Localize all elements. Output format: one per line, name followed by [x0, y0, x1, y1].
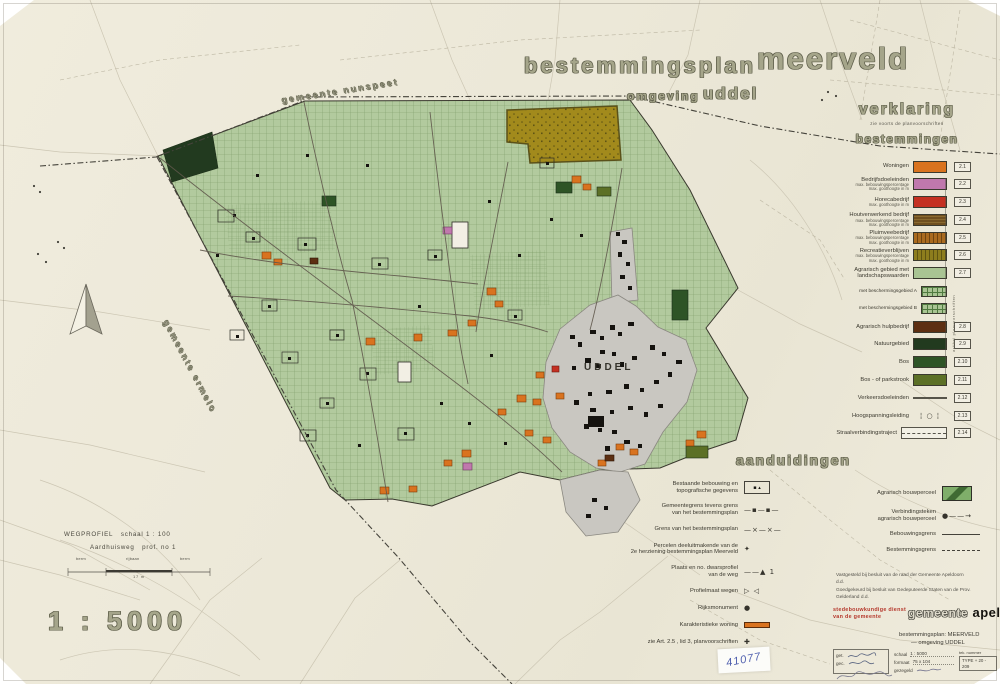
segment-label: berm	[76, 556, 86, 561]
archive-sticker: 41077	[717, 647, 770, 674]
department-line1: stedebouwkundige dienst	[833, 607, 906, 613]
aanduiding-item-label: Verbindingstekenagrarisch bouwperceel	[806, 509, 936, 522]
aanduiding-symbol-cell	[942, 530, 992, 538]
aanduiding-symbol-cell: ✦	[744, 545, 790, 553]
logo-word-gemeente: gemeente	[908, 606, 968, 620]
legend-item-code: 2.3	[954, 197, 971, 207]
legend-swatch-gridgreen	[921, 303, 947, 314]
aanduidingen-right-column: Agrarisch bouwperceelVerbindingstekenagr…	[806, 486, 992, 562]
characteristic-dwelling-symbol	[744, 622, 770, 628]
plan-subtitle-place: uddel	[703, 84, 758, 104]
road-profile-segment-labels: berm rijbaan berm	[64, 556, 224, 562]
approval-note-council: Vastgesteld bij besluit van de raad der …	[836, 572, 994, 586]
aanduiding-item-label: Bebouwingsgrens	[806, 531, 936, 538]
revision-parcel-symbol: ✦	[744, 545, 751, 553]
building-limit-line	[942, 534, 980, 535]
form-get-label: get.	[836, 653, 844, 658]
archive-number-handwritten: 41077	[725, 651, 762, 670]
approval-date-label: d.d.	[861, 594, 869, 601]
village-label: UDDEL	[584, 362, 633, 373]
aanduiding-item-label: Karakteristieke woning	[614, 622, 738, 629]
form-drawing-number-label: tek. nummer	[959, 650, 997, 655]
road-profile-measure-symbol: ▷ ◁	[744, 587, 760, 595]
legend-item: Horecabedrijfmax. goothoogte in m2.3	[843, 195, 971, 210]
titleblock-plan-name: bestemmingsplan: MEERVELD — omgeving UDD…	[899, 631, 979, 647]
legend-item: Pluimveebedrijfmax. bebouwingspercentage…	[843, 230, 971, 245]
legend-swatch-olivehatch	[913, 249, 947, 261]
legend-item-label: Natuurgebied	[843, 341, 913, 347]
legend-item-label: Bedrijfsdoeleindenmax. bebouwingspercent…	[843, 177, 913, 192]
segment-label: rijbaan	[126, 556, 139, 561]
aanduiding-item: Verbindingstekenagrarisch bouwperceel●——…	[806, 509, 992, 522]
aanduiding-item: Agrarisch bouwperceel	[806, 486, 992, 501]
agrarian-building-plot-swatch	[942, 486, 972, 501]
legend-swatch-brownhatch	[913, 214, 947, 226]
form-format-value: 75 x 104	[913, 659, 954, 665]
aanduiding-item-label: Bestaande bebouwing entopografische gege…	[614, 481, 738, 494]
aanduiding-item-label: Agrarisch bouwperceel	[806, 490, 936, 497]
aanduiding-symbol-cell	[942, 486, 992, 501]
legend-swatch-line	[913, 397, 947, 399]
legend-item-code: 2.14	[954, 428, 971, 438]
legend-item-label: Straalverbindingstraject	[836, 430, 901, 436]
legend-item-label: Hoogspanningsleiding	[843, 413, 913, 419]
legend-item-label: met beschermingsgebied B	[843, 306, 921, 311]
legend-item-label: Pluimveebedrijfmax. bebouwingspercentage…	[843, 230, 913, 245]
form-scale-label: schaal	[894, 652, 907, 657]
legend-swatch-corridor	[901, 427, 947, 439]
legend-item: Bos - of parkstrook2.11	[843, 373, 971, 388]
aanduiding-symbol-cell: ▷ ◁	[744, 587, 790, 595]
legend-subheading: zie voorts de planvoorschriften	[843, 121, 971, 126]
aanduiding-item: Grens van het bestemmingsplan—×—×—	[614, 526, 790, 534]
legend-swatch-hv: ¦ ○ ¦	[913, 410, 947, 422]
signature-scribble	[848, 660, 878, 667]
aanduiding-item-label: Gemeentegrens tevens grensvan het bestem…	[614, 503, 738, 516]
legend-item-code: 2.11	[954, 375, 971, 385]
department-line2: van de gemeente	[833, 614, 881, 620]
form-scale-value: 1 : 5000	[910, 651, 954, 657]
legend-heading: verklaring	[843, 101, 971, 119]
aanduiding-symbol-cell: —▪—▪—	[744, 506, 790, 514]
legend-swatch-rusthatch	[913, 232, 947, 244]
legend-item-code: 2.2	[954, 179, 971, 189]
approval-note-province: Goedgekeurd bij besluit van Gedeputeerde…	[836, 587, 994, 601]
municipality-logo: gemeente apeldoorn	[908, 604, 1000, 622]
legend-item-label: met beschermingsgebied A	[843, 289, 921, 294]
plan-name-line2: — omgeving UDDEL	[911, 639, 979, 647]
national-monument-symbol: ●	[744, 604, 751, 612]
legend-item-label: Horecabedrijfmax. goothoogte in m	[843, 197, 913, 207]
legend-item-code: 2.8	[954, 322, 971, 332]
legend-swatch-orange	[913, 161, 947, 173]
aanduiding-symbol-cell	[744, 621, 790, 629]
existing-buildings-symbol: ▪ ▴	[744, 481, 770, 494]
logo-word-apeldoorn: apeldoorn	[972, 605, 1000, 620]
plan-boundary-symbol: —×—×—	[744, 526, 782, 534]
approval-date-label: d.d.	[836, 579, 844, 586]
legend-item-code: 2.1	[954, 162, 971, 172]
legend-item: Verkeersdoeleinden2.12	[843, 390, 971, 405]
plan-title: bestemmingsplan	[524, 53, 756, 79]
legend-item: Straalverbindingstraject2.14	[843, 426, 971, 441]
legend-item: Agrarisch gebied metlandschapswaarden2.7	[843, 266, 971, 281]
plan-area-polygon	[158, 100, 748, 506]
legend-swatch-pink	[913, 178, 947, 190]
aanduiding-item: Bebouwingsgrens	[806, 530, 992, 538]
aanduiding-item-label: zie Art. 2.5 , lid 3, planvoorschriften	[614, 639, 738, 646]
aanduiding-item: Profielmaat wegen▷ ◁	[614, 587, 790, 595]
legend-item: Bedrijfsdoeleindenmax. bebouwingspercent…	[843, 177, 971, 192]
legend-item: Woningen2.1	[843, 159, 971, 174]
plan-name-line1: bestemmingsplan: MEERVELD	[899, 632, 979, 638]
legend-section-bestemmingen: bestemmingen	[843, 132, 971, 146]
aanduiding-item-label: Percelen deeluitmakende van de2e herzien…	[614, 543, 738, 556]
legend-item-code: 2.4	[954, 215, 971, 225]
form-number-box: tek. nummer TYPE + 20 - 209	[959, 649, 997, 674]
horeca-parcel-red	[552, 366, 559, 372]
signature-scribble	[916, 667, 942, 674]
legend-swatch-gridgreen	[921, 286, 947, 297]
legend-item-code: 2.10	[954, 357, 971, 367]
legend-item-code: 2.12	[954, 393, 971, 403]
road-profile-number: prof. no 1	[142, 544, 176, 551]
municipal-boundary-symbol: —▪—▪—	[744, 506, 780, 514]
legend-swatch-bosgreen	[913, 356, 947, 368]
legend-item-code: 2.6	[954, 250, 971, 260]
aanduiding-item-label: Plaats en no. dwarsprofielvan de weg	[614, 565, 738, 578]
aanduiding-symbol-cell: ●	[744, 604, 790, 612]
form-sealed-label: gezegeld	[894, 668, 913, 673]
legend-item-label: Verkeersdoeleinden	[843, 395, 913, 401]
legend-item-label: Houtverwerkend bedrijfmax. bebouwingsper…	[843, 212, 913, 227]
aanduiding-item: Bestaande bebouwing entopografische gege…	[614, 481, 790, 494]
legend-divider-line	[945, 178, 946, 374]
legend-item-label: Bos - of parkstrook	[843, 377, 913, 383]
aanduiding-item: Gemeentegrens tevens grensvan het bestem…	[614, 503, 790, 516]
segment-label: berm	[180, 556, 190, 561]
connection-mark-symbol: ●——→	[942, 512, 972, 520]
zoning-boundary-line	[942, 550, 980, 551]
legend-swatch-parkgreen	[913, 374, 947, 386]
legend-swatch-red	[913, 196, 947, 208]
road-profile-road: Aardhuisweg	[90, 544, 135, 551]
legend-item-label: Recreatieverblijvenmax. bebouwingspercen…	[843, 248, 913, 263]
aanduiding-symbol-cell: —×—×—	[744, 526, 790, 534]
signature-scribble	[847, 652, 877, 659]
article-reference-symbol: ✚	[744, 638, 751, 646]
aanduiding-item-label: Profielmaat wegen	[614, 588, 738, 595]
aanduiding-item: Plaats en no. dwarsprofielvan de weg——▲ …	[614, 565, 790, 578]
aanduidingen-heading: aanduidingen	[736, 452, 851, 468]
form-type-label: TYPE	[962, 658, 973, 663]
legend-item-code: 2.9	[954, 339, 971, 349]
department-stamp: stedebouwkundige dienst van de gemeente	[833, 607, 907, 621]
road-profile-block: WEGPROFIEL schaal 1 : 100 Aardhuisweg pr…	[64, 531, 224, 579]
approval-text: Goedgekeurd bij besluit van Gedeputeerde…	[836, 588, 971, 600]
aanduiding-symbol-cell: ●——→	[942, 512, 992, 520]
aanduiding-item-label: Bestemmingsgrens	[806, 547, 936, 554]
legend-side-note: artikel planvoorschriften	[951, 295, 956, 352]
map-sheet: bestemmingsplan meerveld omgeving uddel …	[0, 0, 1000, 684]
legend-item-label: Bos	[843, 359, 913, 365]
plan-subtitle-prefix: omgeving	[627, 89, 700, 103]
pencil-signature	[835, 669, 895, 683]
road-profile-title: WEGPROFIEL	[64, 531, 113, 538]
legend-item-code: 2.7	[954, 268, 971, 278]
legend-swatch-darkbrown	[913, 321, 947, 333]
legend: verklaring zie voorts de planvoorschrift…	[843, 101, 971, 444]
aanduidingen-left-column: Bestaande bebouwing entopografische gege…	[614, 481, 790, 655]
legend-swatch-verydarkgreen	[913, 338, 947, 350]
aanduiding-symbol-cell: ✚	[744, 638, 790, 646]
aanduiding-item: Bestemmingsgrens	[806, 546, 992, 554]
form-gec-label: gec.	[836, 661, 845, 666]
legend-item: Hoogspanningsleiding¦ ○ ¦2.13	[843, 408, 971, 423]
map-scale-text: 1 : 5000	[48, 606, 187, 637]
legend-item: Recreatieverblijvenmax. bebouwingspercen…	[843, 248, 971, 263]
road-profile-scale: schaal 1 : 100	[121, 531, 171, 538]
aanduiding-item: Rijksmonument●	[614, 604, 790, 612]
approval-text: Vastgesteld bij besluit van de raad der …	[836, 573, 964, 578]
aanduiding-symbol-cell: ▪ ▴	[744, 481, 790, 494]
form-format-label: formaat	[894, 660, 910, 665]
road-profile-location-symbol: ——▲ 1	[744, 568, 775, 576]
legend-item-label: Agrarisch gebied metlandschapswaarden	[843, 267, 913, 279]
aanduiding-item: Karakteristieke woning	[614, 621, 790, 629]
legend-item-label: Woningen	[843, 163, 913, 169]
form-scale-box: schaal 1 : 5000 formaat 75 x 104 gezegel…	[894, 649, 954, 674]
aanduiding-item: Percelen deeluitmakende van de2e herzien…	[614, 543, 790, 556]
aanduiding-item: zie Art. 2.5 , lid 3, planvoorschriften✚	[614, 638, 790, 646]
legend-item: Houtverwerkend bedrijfmax. bebouwingsper…	[843, 212, 971, 227]
legend-item-code: 2.13	[954, 411, 971, 421]
aanduiding-symbol-cell: ——▲ 1	[744, 568, 790, 576]
aanduiding-item-label: Grens van het bestemmingsplan	[614, 526, 738, 533]
plan-title-emphasis: meerveld	[757, 41, 909, 77]
aanduiding-item-label: Rijksmonument	[614, 605, 738, 612]
legend-item-label: Agrarisch hulpbedrijf	[843, 324, 913, 330]
legend-swatch-lightgreen	[913, 267, 947, 279]
road-profile-dimension: 17 m	[64, 574, 214, 579]
legend-item: Bos2.10	[843, 355, 971, 370]
aanduiding-symbol-cell	[942, 546, 992, 554]
legend-item-code: 2.5	[954, 233, 971, 243]
